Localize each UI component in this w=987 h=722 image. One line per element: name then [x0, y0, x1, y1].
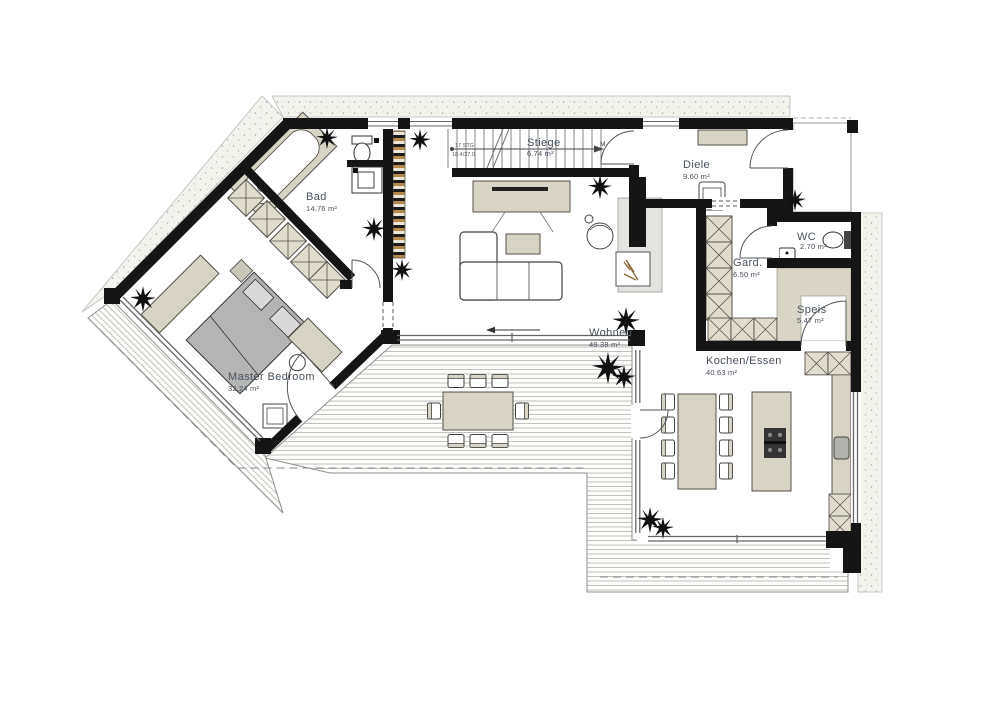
kitchen-table — [678, 394, 716, 489]
wardrobe-box — [828, 352, 851, 375]
chair — [720, 394, 733, 410]
wall-stairs-south — [452, 168, 639, 177]
room-label-master: Master Bedroom — [228, 371, 315, 383]
chair — [470, 375, 486, 388]
chair — [492, 375, 508, 388]
room-area-wc: 2.70 m² — [800, 242, 827, 251]
room-label-stiege: Stiege — [527, 137, 561, 149]
door-gap — [801, 341, 846, 351]
room-label-wohnen: Wohnen — [589, 327, 632, 339]
outdoor-table — [443, 392, 513, 430]
stair-dim-note: 18.4/27.0 — [452, 152, 475, 158]
room-area-speis: 5.47 m² — [797, 316, 824, 325]
room-area-diele: 9.60 m² — [683, 172, 710, 181]
door-gap — [781, 130, 795, 168]
room-area-stiege: 6.74 m² — [527, 149, 554, 158]
glass-end-block-west — [104, 288, 120, 304]
door-gap — [765, 226, 779, 258]
wardrobe-box — [731, 318, 754, 341]
room-label-kochen: Kochen/Essen — [706, 355, 782, 367]
chair — [720, 463, 733, 479]
chair — [448, 435, 464, 448]
gravel-top — [272, 96, 790, 117]
room-label-speis: Speis — [797, 304, 827, 316]
chair — [720, 417, 733, 433]
wall-porch-south — [783, 212, 861, 222]
wall-bad-south-stub — [340, 280, 352, 289]
room-label-bad: Bad — [306, 191, 327, 203]
room-area-gard: 6.50 m² — [733, 270, 760, 279]
room-area-bad: 14.76 m² — [306, 204, 337, 213]
door-gap — [712, 197, 740, 210]
wall-top — [283, 118, 793, 129]
wc-sink — [779, 248, 795, 259]
chair — [662, 463, 675, 479]
stair-walk-start-dot — [450, 147, 454, 151]
floor-plan-page: Bad 14.76 m² Stiege 6.74 m² 17 STG 18.4/… — [0, 0, 987, 722]
wardrobe-box — [706, 294, 732, 320]
room-area-wohnen: 49.38 m² — [589, 340, 620, 349]
chair — [428, 403, 441, 419]
hall-sideboard — [698, 130, 747, 145]
chair — [662, 394, 675, 410]
chair — [720, 440, 733, 456]
wardrobe-box — [706, 242, 732, 268]
post-porch-ne — [847, 120, 858, 133]
window-gap — [410, 118, 452, 129]
stair-marker: M — [600, 141, 605, 148]
chair — [492, 435, 508, 448]
room-label-diele: Diele — [683, 159, 710, 171]
kitchen-counter — [832, 358, 851, 497]
kitchen-island — [752, 392, 791, 491]
hall-wardrobe-strip — [393, 131, 405, 258]
wardrobe-box — [706, 268, 732, 294]
glass-end-block-south — [255, 438, 271, 454]
wardrobe-box — [805, 352, 828, 375]
chair — [662, 440, 675, 456]
wall-corridor — [383, 129, 393, 302]
wardrobe-box — [829, 494, 851, 516]
wall-wc-south — [777, 258, 861, 268]
chair — [448, 375, 464, 388]
wall-diele-south-left — [629, 199, 712, 208]
window-gap — [851, 392, 861, 523]
room-area-kochen: 40.63 m² — [706, 368, 737, 377]
wardrobe-box — [754, 318, 777, 341]
stair-steps-note: 17 STG — [455, 143, 474, 149]
chair — [516, 403, 529, 419]
wall-gard-west — [696, 208, 706, 351]
bedroom-chair — [263, 404, 287, 428]
gravel-right — [858, 213, 882, 592]
window-gap — [368, 118, 398, 129]
fireplace-column — [629, 177, 646, 247]
wall-se-corner-b — [843, 531, 861, 573]
room-area-master: 32.24 m² — [228, 384, 259, 393]
wardrobe-box — [708, 318, 731, 341]
door-gap — [627, 129, 641, 165]
room-label-gard: Gard. — [733, 257, 763, 269]
post-living-sw — [381, 330, 400, 344]
floor-plan-drawing: Bad 14.76 m² Stiege 6.74 m² 17 STG 18.4/… — [0, 0, 987, 722]
kitchen-dining-set — [662, 394, 733, 489]
window-gap — [643, 118, 679, 129]
coffee-table — [506, 234, 540, 254]
wardrobe-box — [706, 216, 732, 242]
chair — [470, 435, 486, 448]
